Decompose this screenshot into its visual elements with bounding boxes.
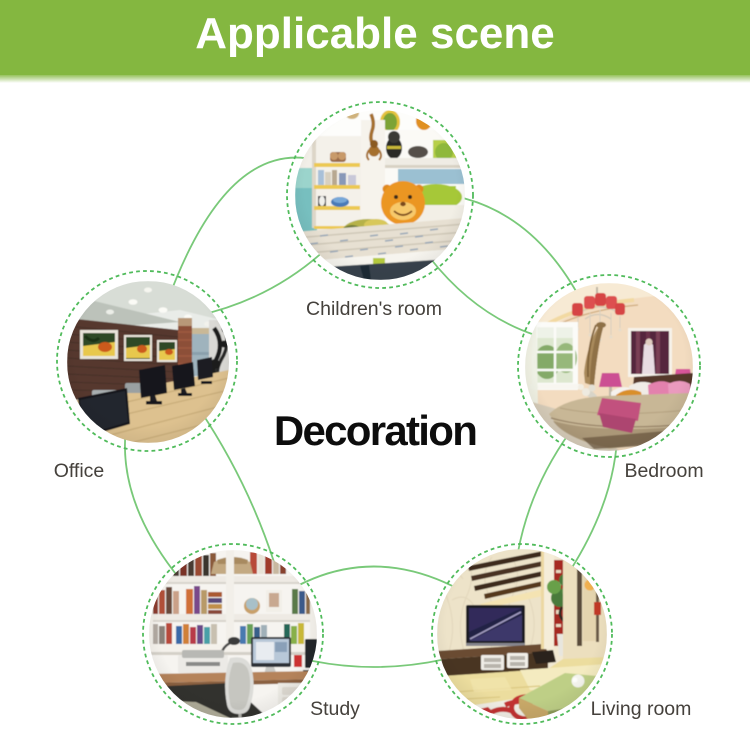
svg-text:Office: Office <box>54 460 105 482</box>
svg-text:Children's room: Children's room <box>306 298 442 320</box>
svg-text:Study: Study <box>310 698 360 720</box>
svg-text:Decoration: Decoration <box>274 407 476 454</box>
svg-text:Bedroom: Bedroom <box>624 460 703 482</box>
svg-text:Living room: Living room <box>591 698 692 720</box>
svg-text:Applicable scene: Applicable scene <box>195 9 554 58</box>
